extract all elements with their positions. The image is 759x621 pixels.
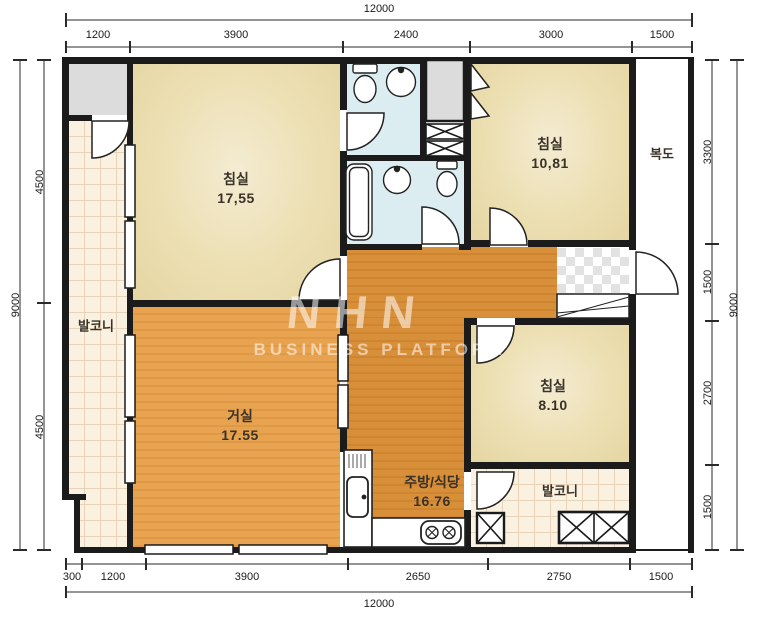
kitchen-label: 주방/식당 16.76 bbox=[404, 473, 459, 511]
duct-shaft bbox=[426, 60, 464, 121]
bedroom1-label: 침실 17,55 bbox=[217, 170, 255, 208]
toilet-icon bbox=[437, 161, 457, 197]
room-area: 16.76 bbox=[404, 492, 459, 511]
door-balcony-right bbox=[477, 472, 514, 509]
dim-left-seg: 4500 bbox=[34, 413, 46, 441]
room-name: 거실 bbox=[221, 407, 259, 426]
dim-bottom-seg: 2750 bbox=[545, 571, 573, 583]
sink-icon bbox=[387, 68, 416, 97]
dim-top-seg: 3900 bbox=[222, 29, 250, 41]
room-area: 8.10 bbox=[538, 396, 567, 415]
balcony-right-label: 발코니 bbox=[542, 481, 578, 500]
dim-top-total: 12000 bbox=[362, 3, 397, 15]
doors bbox=[92, 64, 678, 509]
dim-right-total: 9000 bbox=[728, 291, 740, 319]
dim-bottom-total: 12000 bbox=[362, 598, 397, 610]
room-area: 10,81 bbox=[531, 154, 569, 173]
corridor-label: 복도 bbox=[650, 144, 674, 163]
dim-bottom-seg: 1500 bbox=[647, 571, 675, 583]
dim-left-total: 9000 bbox=[10, 291, 22, 319]
door-bathroom2 bbox=[422, 207, 459, 244]
bedroom3-label: 침실 8.10 bbox=[538, 377, 567, 415]
door-utility bbox=[92, 121, 129, 158]
dim-right-seg: 1500 bbox=[702, 493, 714, 521]
dim-bottom-seg: 2650 bbox=[404, 571, 432, 583]
floor-plan-page: 침실 17,55 침실 10,81 침실 8.10 거실 17.55 주방/식당… bbox=[0, 0, 759, 621]
vent-box-icon bbox=[426, 124, 464, 156]
door-bedroom1 bbox=[299, 259, 340, 300]
dim-bottom-seg: 1200 bbox=[99, 571, 127, 583]
bathtub-icon bbox=[346, 164, 372, 240]
door-front-entry bbox=[636, 252, 678, 294]
room-name: 침실 bbox=[217, 170, 255, 189]
room-area: 17.55 bbox=[221, 426, 259, 445]
dim-left-seg: 4500 bbox=[34, 168, 46, 196]
toilet-icon bbox=[353, 64, 377, 103]
door-bathroom1 bbox=[347, 113, 384, 150]
dim-right-seg: 1500 bbox=[702, 268, 714, 296]
balcony-left-label: 발코니 bbox=[78, 316, 114, 335]
dim-right-seg: 2700 bbox=[702, 379, 714, 407]
dim-bottom-seg: 3900 bbox=[233, 571, 261, 583]
room-name: 침실 bbox=[538, 377, 567, 396]
shoe-cabinet-icon bbox=[557, 294, 629, 318]
room-area: 17,55 bbox=[217, 189, 255, 208]
bedroom2-label: 침실 10,81 bbox=[531, 135, 569, 173]
ac-unit-pad-icon bbox=[477, 512, 629, 543]
living-room-label: 거실 17.55 bbox=[221, 407, 259, 445]
kitchen-sink-icon bbox=[347, 477, 368, 517]
dim-bottom-seg: 300 bbox=[61, 571, 83, 583]
plan-linework bbox=[0, 0, 759, 621]
door-bedroom3 bbox=[477, 326, 514, 363]
dim-top-seg: 2400 bbox=[392, 29, 420, 41]
dim-top-seg: 1200 bbox=[84, 29, 112, 41]
dim-top-seg: 3000 bbox=[537, 29, 565, 41]
closet-bifold-icon bbox=[471, 64, 489, 119]
stove-icon bbox=[421, 521, 461, 544]
bathroom1-fixtures bbox=[353, 64, 416, 103]
sink-icon bbox=[384, 167, 411, 194]
dim-top-seg: 1500 bbox=[648, 29, 676, 41]
room-name: 주방/식당 bbox=[404, 473, 459, 492]
room-name: 침실 bbox=[531, 135, 569, 154]
door-bedroom2 bbox=[490, 208, 527, 245]
dim-right-seg: 3300 bbox=[702, 138, 714, 166]
